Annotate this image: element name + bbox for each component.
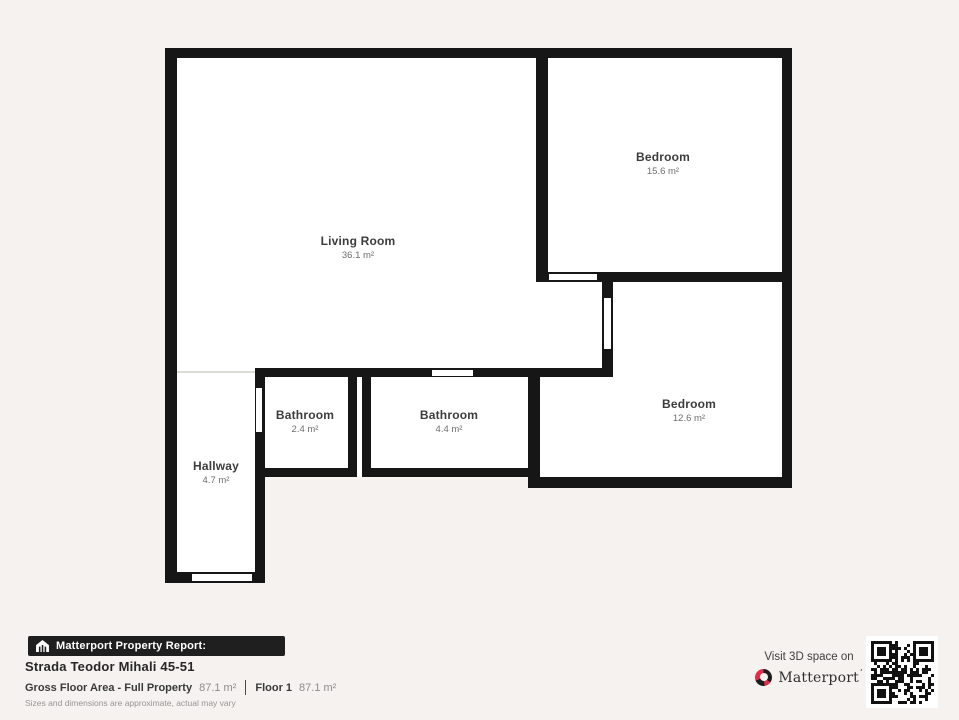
report-badge: Matterport Property Report: [28, 636, 285, 656]
outside-area [528, 488, 792, 583]
disclaimer-text: Sizes and dimensions are approximate, ac… [25, 698, 236, 708]
room-name: Bathroom [276, 408, 334, 423]
room-name: Hallway [193, 459, 239, 474]
door-opening [191, 573, 253, 582]
matterport-brand: Matterport’ [743, 668, 875, 686]
wall [165, 48, 792, 58]
wall [528, 477, 792, 488]
stat-label-floor-1: Floor 1 [255, 682, 292, 694]
area-stats: Gross Floor Area - Full Property 87.1 m²… [25, 680, 336, 695]
wall [362, 468, 540, 477]
property-address: Strada Teodor Mihali 45-51 [25, 659, 195, 674]
room-label-bedroom-1: Bedroom15.6 m² [636, 150, 690, 178]
wall [536, 57, 548, 282]
room-area: 12.6 m² [662, 413, 716, 425]
wall [362, 377, 371, 477]
report-badge-label: Matterport Property Report: [56, 640, 206, 652]
room-label-hallway: Hallway4.7 m² [193, 459, 239, 487]
open-boundary-line [177, 371, 255, 373]
room-area: 15.6 m² [636, 166, 690, 178]
wall [257, 468, 357, 477]
door-opening [431, 369, 474, 377]
room-label-bedroom-2: Bedroom12.6 m² [662, 397, 716, 425]
stat-value-floor-1: 87.1 m² [299, 682, 336, 694]
room-name: Bedroom [636, 150, 690, 165]
qr-pattern [871, 641, 934, 704]
room-label-living-room: Living Room36.1 m² [321, 234, 396, 262]
room-area: 36.1 m² [321, 250, 396, 262]
outside-area [265, 477, 528, 583]
visit-3d-text: Visit 3D space on [743, 651, 875, 663]
room-name: Bathroom [420, 408, 478, 423]
door-opening [255, 387, 263, 433]
trademark-tick: ’ [860, 668, 863, 677]
matterport-wordmark: Matterport’ [778, 668, 862, 686]
room-name: Bedroom [662, 397, 716, 412]
room-label-bathroom-1: Bathroom2.4 m² [276, 408, 334, 436]
stat-divider [245, 680, 246, 695]
door-opening [603, 297, 612, 350]
room-area: 2.4 m² [276, 424, 334, 436]
room-name: Living Room [321, 234, 396, 249]
stat-value-gross-floor-area: 87.1 m² [199, 682, 236, 694]
door-opening [548, 273, 598, 281]
wall [528, 368, 540, 488]
qr-code [866, 636, 938, 708]
wall [782, 48, 792, 488]
wall [165, 48, 177, 583]
house-icon [36, 640, 49, 652]
room-area: 4.4 m² [420, 424, 478, 436]
wall [348, 377, 357, 477]
visit-3d-cta: Visit 3D space on Matterport’ [743, 651, 875, 686]
stat-label-gross-floor-area: Gross Floor Area - Full Property [25, 682, 192, 694]
matterport-logo-icon [755, 669, 772, 686]
floorplan: Living Room36.1 m²Bedroom15.6 m²Bedroom1… [0, 0, 959, 720]
room-area: 4.7 m² [193, 475, 239, 487]
room-label-bathroom-2: Bathroom4.4 m² [420, 408, 478, 436]
